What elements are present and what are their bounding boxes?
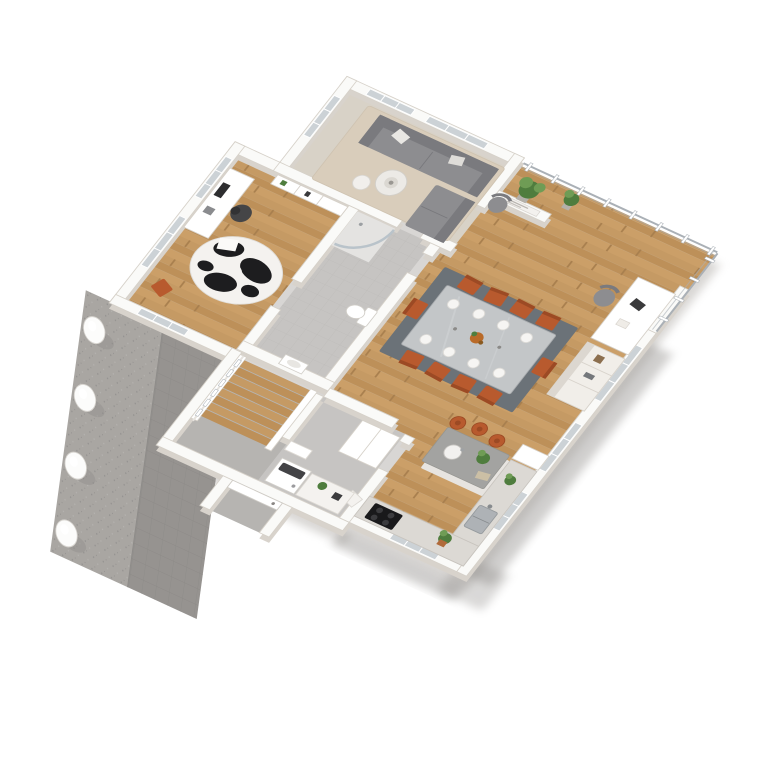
scene-root: [17, 56, 744, 620]
floorplan-render: [0, 0, 768, 768]
floorplan-svg: [0, 0, 768, 768]
